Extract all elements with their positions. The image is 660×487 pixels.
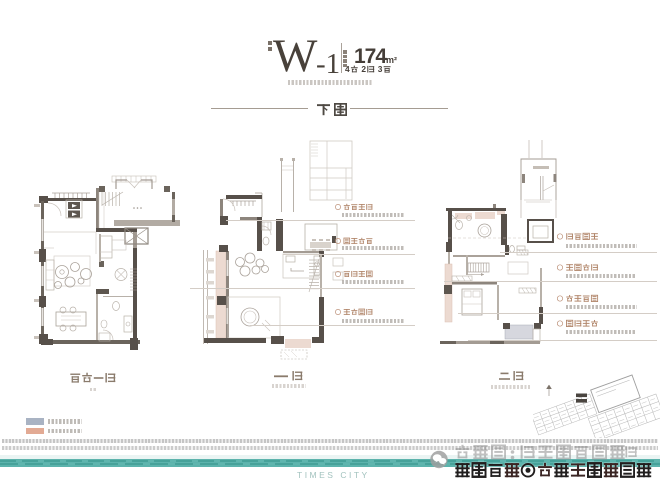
svg-text:4: 4 [345, 65, 350, 73]
svg-text:2: 2 [361, 65, 366, 73]
svg-text:3: 3 [378, 65, 383, 73]
